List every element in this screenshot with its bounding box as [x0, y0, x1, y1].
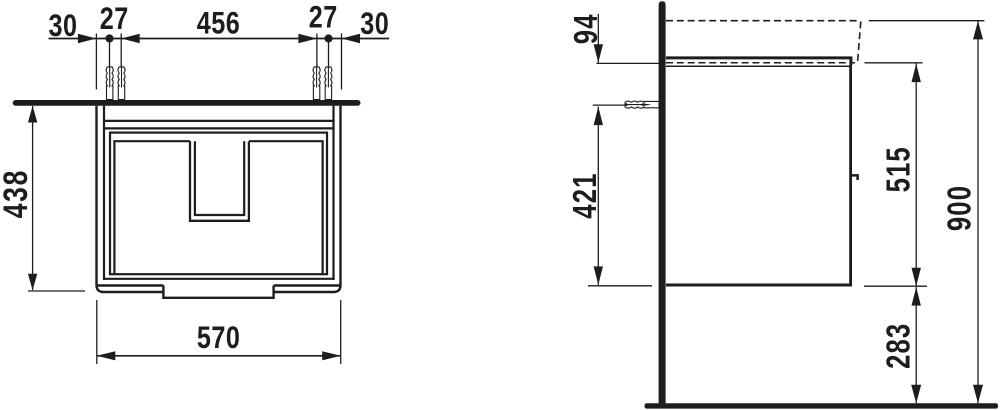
- svg-text:900: 900: [942, 185, 979, 231]
- svg-text:456: 456: [197, 6, 240, 41]
- svg-text:30: 30: [49, 8, 78, 43]
- svg-text:94: 94: [568, 13, 605, 44]
- svg-text:283: 283: [881, 323, 918, 369]
- svg-text:570: 570: [197, 321, 240, 356]
- svg-text:515: 515: [881, 146, 918, 192]
- svg-text:27: 27: [100, 1, 129, 36]
- svg-text:27: 27: [309, 0, 338, 35]
- svg-text:30: 30: [360, 6, 389, 41]
- svg-text:438: 438: [0, 169, 35, 218]
- svg-text:421: 421: [567, 172, 604, 218]
